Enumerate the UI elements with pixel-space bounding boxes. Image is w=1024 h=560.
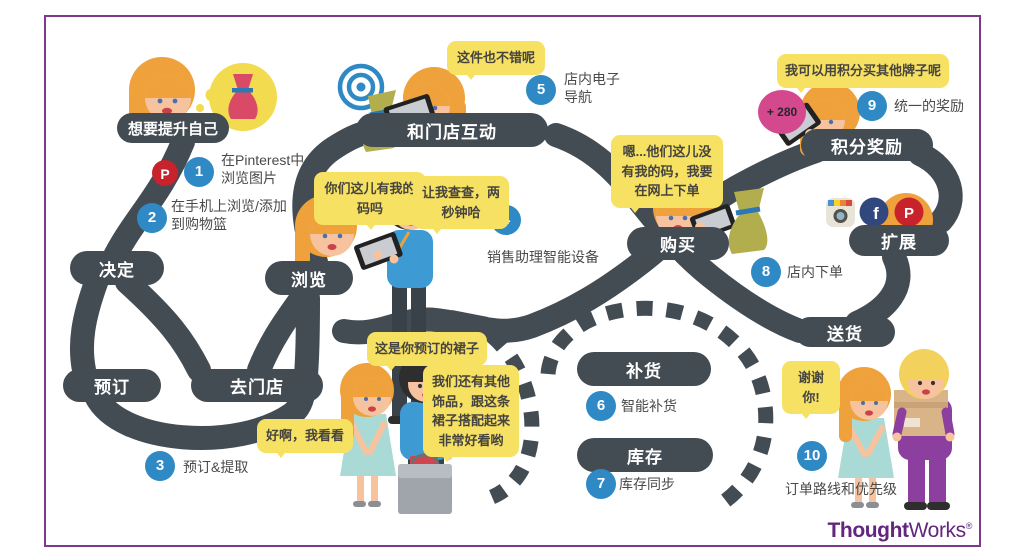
step-10-label: 订单路线和优先级 <box>785 481 935 499</box>
speech-bubble-points-brands: 我可以用积分买其他牌子呢 <box>777 54 949 88</box>
station-go-store: 去门店 <box>191 369 323 402</box>
step-8-circle: 8 <box>751 257 781 287</box>
step-10-circle: 10 <box>797 441 827 471</box>
step-9-label: 统一的奖励 <box>894 98 984 116</box>
speech-bubble-ok-look: 好啊，我看看 <box>257 419 353 453</box>
step-7-circle: 7 <box>586 469 616 499</box>
road-segment <box>127 282 199 370</box>
station-browse: 浏览 <box>265 261 353 295</box>
speech-bubble-no-size: 嗯...他们这儿没 有我的码，我要 在网上下单 <box>611 135 723 208</box>
speech-bubble-accessories: 我们还有其他 饰品，跟这条 裙子搭配起来 非常好看哟 <box>423 365 519 457</box>
svg-text:P: P <box>904 205 914 222</box>
station-replenish: 补货 <box>577 352 711 386</box>
thoughtworks-logo: ThoughtWorks® <box>827 519 972 543</box>
step-6-label: 智能补货 <box>621 398 701 416</box>
speech-bubble-thanks: 谢谢你! <box>782 361 840 414</box>
facebook-icon: f <box>860 198 889 227</box>
step-1-label: 在Pinterest中 浏览图片 <box>221 152 321 187</box>
step-9-circle: 9 <box>857 91 887 121</box>
station-want-improve: 想要提升自己 <box>117 113 229 143</box>
station-expand: 扩展 <box>849 225 949 256</box>
step-6-circle: 6 <box>586 391 616 421</box>
step-2-circle: 2 <box>137 203 167 233</box>
instagram-icon <box>826 198 855 227</box>
station-reserve: 预订 <box>63 369 161 402</box>
logo-light-part: Works <box>909 519 966 542</box>
speech-bubble-reserved-dress: 这是你预订的裙子 <box>367 332 487 366</box>
step-4-label: 销售助理智能设备 <box>487 249 612 267</box>
station-decide: 决定 <box>70 251 164 285</box>
logo-bold-part: Thought <box>827 519 908 542</box>
station-delivery: 送货 <box>795 317 895 347</box>
station-inventory: 库存 <box>577 438 713 472</box>
step-5-label: 店内电子 导航 <box>564 71 634 106</box>
speech-bubble-let-check: 让我查查，两 秒钟哈 <box>413 176 509 229</box>
step-8-label: 店内下单 <box>787 264 867 282</box>
svg-text:f: f <box>873 204 879 223</box>
pinterest-icon: P <box>895 198 924 227</box>
logo-registered-mark: ® <box>966 521 972 531</box>
pinterest-icon: P <box>152 160 178 186</box>
station-interact-store: 和门店互动 <box>356 113 548 147</box>
points-badge: + 280 <box>758 90 806 134</box>
step-7-label: 库存同步 <box>619 476 699 494</box>
step-1-circle: 1 <box>184 157 214 187</box>
step-2-label: 在手机上浏览/添加 到购物篮 <box>171 198 301 233</box>
speech-bubble-have-size: 你们这儿有我的 码吗 <box>314 172 426 225</box>
step-5-circle: 5 <box>526 75 556 105</box>
speech-bubble-this-one: 这件也不错呢 <box>447 41 545 75</box>
svg-text:P: P <box>160 166 169 182</box>
step-3-circle: 3 <box>145 451 175 481</box>
station-purchase: 购买 <box>627 227 729 260</box>
station-points-reward: 积分奖励 <box>801 129 933 161</box>
road-segment <box>82 280 97 370</box>
journey-map-canvas: f P P <box>0 0 1024 560</box>
